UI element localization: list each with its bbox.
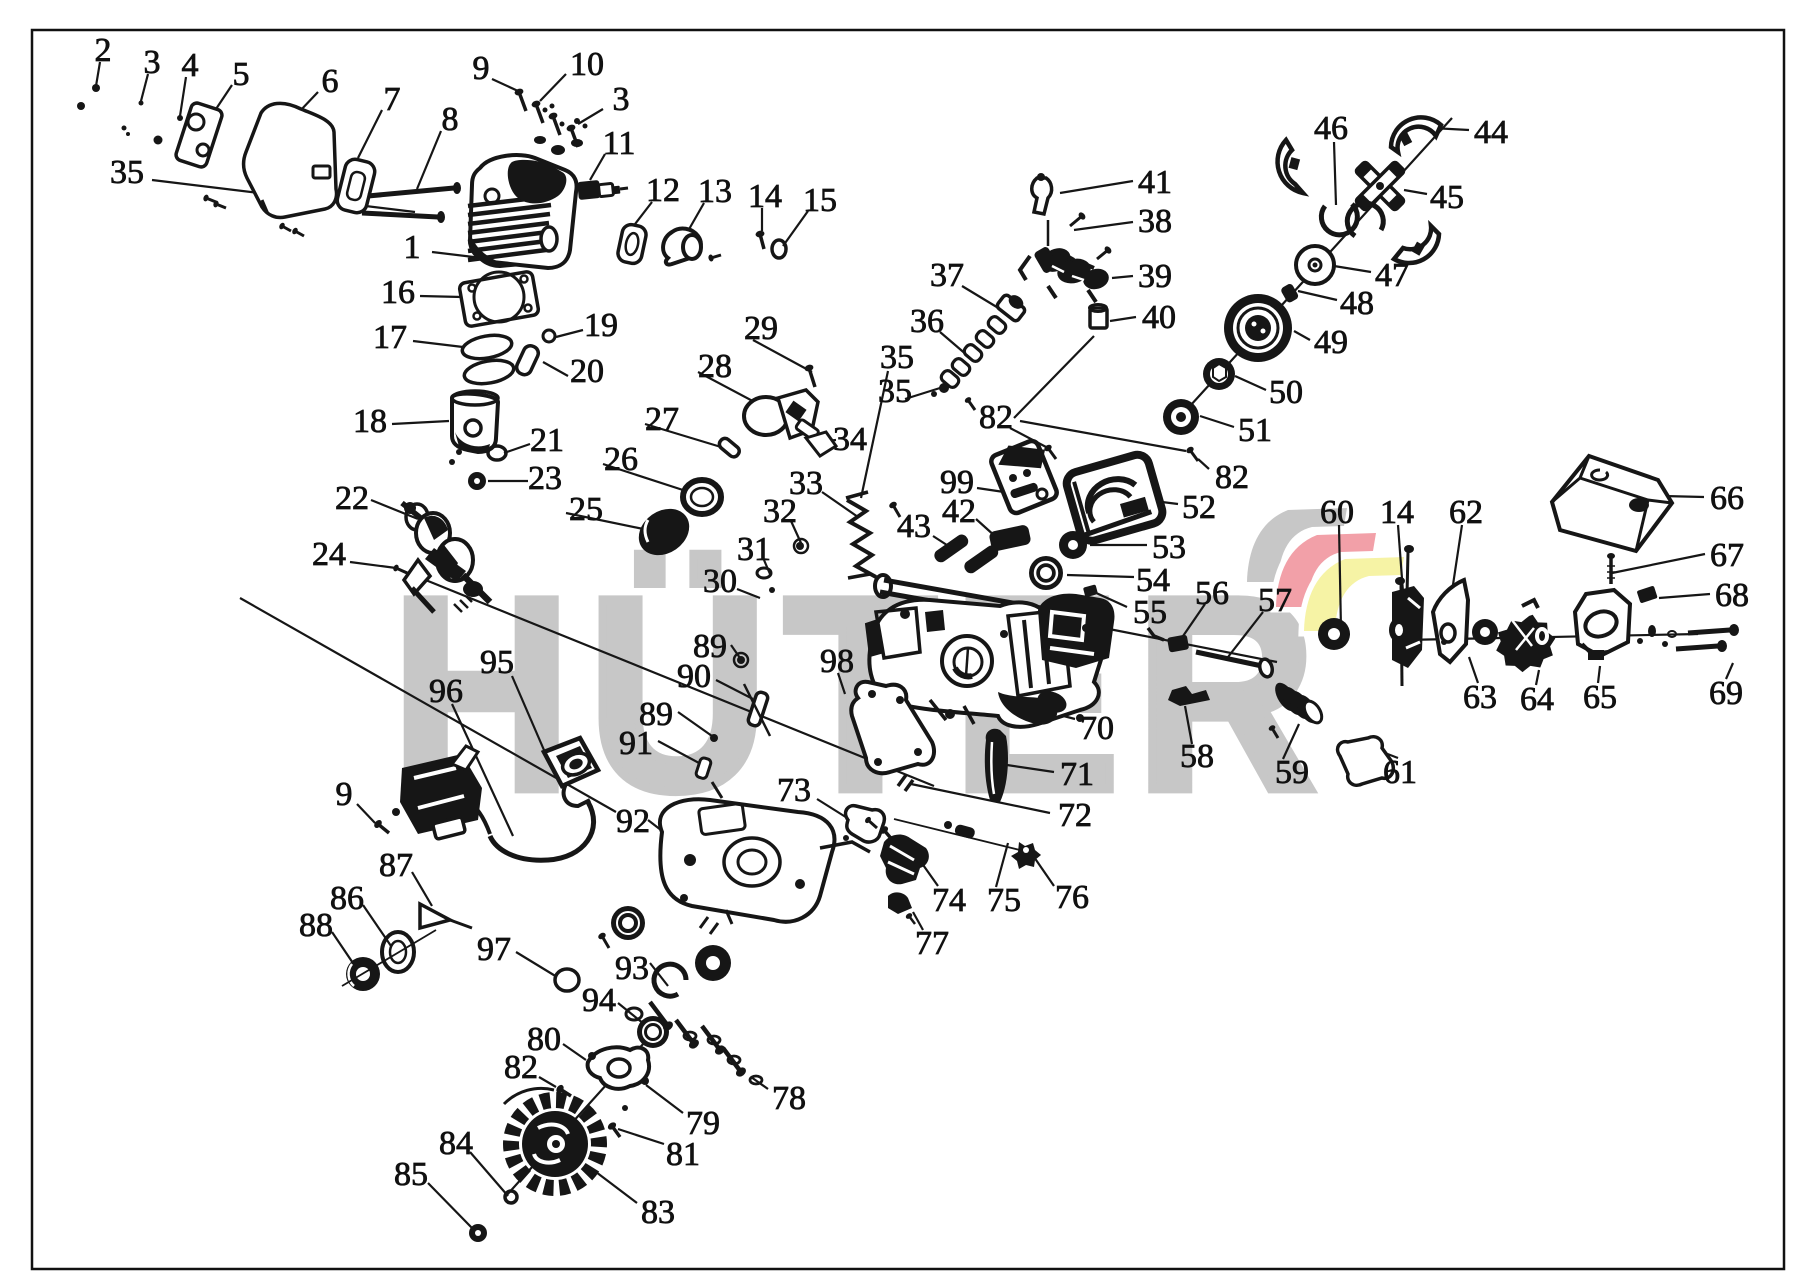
svg-text:49: 49: [1314, 324, 1348, 361]
svg-text:45: 45: [1430, 179, 1464, 216]
svg-text:4: 4: [182, 47, 199, 84]
svg-text:24: 24: [312, 536, 346, 573]
svg-text:41: 41: [1138, 164, 1172, 201]
svg-text:6: 6: [322, 63, 339, 100]
svg-text:77: 77: [915, 925, 949, 962]
svg-text:27: 27: [645, 401, 679, 438]
svg-text:66: 66: [1710, 480, 1744, 517]
svg-text:28: 28: [698, 348, 732, 385]
svg-text:63: 63: [1463, 679, 1497, 716]
svg-text:13: 13: [698, 173, 732, 210]
svg-text:44: 44: [1474, 114, 1508, 151]
svg-text:35: 35: [880, 339, 914, 376]
svg-text:74: 74: [932, 882, 966, 919]
svg-text:47: 47: [1375, 257, 1409, 294]
svg-text:64: 64: [1520, 681, 1554, 718]
svg-text:85: 85: [394, 1156, 428, 1193]
svg-text:2: 2: [95, 32, 112, 69]
svg-text:62: 62: [1449, 494, 1483, 531]
svg-text:81: 81: [666, 1136, 700, 1173]
svg-text:9: 9: [336, 776, 353, 813]
svg-text:3: 3: [613, 81, 630, 118]
svg-text:9: 9: [473, 50, 490, 87]
svg-text:93: 93: [615, 950, 649, 987]
svg-text:83: 83: [641, 1194, 675, 1231]
svg-text:86: 86: [330, 880, 364, 917]
svg-text:91: 91: [619, 725, 653, 762]
svg-text:97: 97: [477, 931, 511, 968]
svg-text:35: 35: [878, 373, 912, 410]
svg-text:20: 20: [570, 353, 604, 390]
svg-text:61: 61: [1383, 754, 1417, 791]
svg-text:21: 21: [530, 422, 564, 459]
svg-text:72: 72: [1058, 797, 1092, 834]
svg-text:75: 75: [987, 882, 1021, 919]
svg-text:39: 39: [1138, 258, 1172, 295]
svg-text:84: 84: [439, 1125, 473, 1162]
svg-text:34: 34: [833, 421, 867, 458]
svg-text:35: 35: [110, 154, 144, 191]
svg-text:69: 69: [1709, 675, 1743, 712]
svg-text:23: 23: [528, 460, 562, 497]
svg-text:15: 15: [803, 182, 837, 219]
svg-text:88: 88: [299, 907, 333, 944]
svg-text:30: 30: [703, 563, 737, 600]
svg-text:17: 17: [373, 319, 407, 356]
svg-text:7: 7: [384, 81, 401, 118]
svg-text:12: 12: [646, 172, 680, 209]
svg-text:76: 76: [1055, 879, 1089, 916]
svg-text:53: 53: [1152, 529, 1186, 566]
svg-text:82: 82: [504, 1049, 538, 1086]
svg-text:82: 82: [1215, 459, 1249, 496]
svg-text:43: 43: [897, 508, 931, 545]
svg-text:71: 71: [1060, 756, 1094, 793]
svg-text:48: 48: [1340, 285, 1374, 322]
svg-text:82: 82: [979, 399, 1013, 436]
svg-text:73: 73: [777, 772, 811, 809]
svg-text:37: 37: [930, 257, 964, 294]
svg-text:78: 78: [772, 1080, 806, 1117]
svg-text:3: 3: [144, 44, 161, 81]
svg-text:10: 10: [570, 46, 604, 83]
svg-text:8: 8: [442, 101, 459, 138]
svg-text:60: 60: [1320, 494, 1354, 531]
svg-text:46: 46: [1314, 110, 1348, 147]
svg-text:57: 57: [1258, 582, 1292, 619]
svg-text:96: 96: [429, 673, 463, 710]
svg-text:18: 18: [353, 403, 387, 440]
svg-text:58: 58: [1180, 738, 1214, 775]
svg-text:67: 67: [1710, 537, 1744, 574]
svg-text:11: 11: [603, 125, 636, 162]
svg-text:42: 42: [942, 493, 976, 530]
svg-text:95: 95: [480, 644, 514, 681]
svg-text:98: 98: [820, 643, 854, 680]
svg-text:14: 14: [748, 178, 782, 215]
svg-text:59: 59: [1275, 754, 1309, 791]
svg-text:33: 33: [789, 465, 823, 502]
svg-text:94: 94: [582, 982, 616, 1019]
svg-text:56: 56: [1195, 575, 1229, 612]
svg-text:38: 38: [1138, 203, 1172, 240]
svg-text:1: 1: [404, 229, 421, 266]
svg-text:87: 87: [379, 847, 413, 884]
svg-text:65: 65: [1583, 679, 1617, 716]
svg-text:14: 14: [1380, 494, 1414, 531]
svg-text:5: 5: [233, 56, 250, 93]
svg-text:29: 29: [744, 310, 778, 347]
svg-text:50: 50: [1269, 374, 1303, 411]
svg-text:31: 31: [737, 531, 771, 568]
svg-text:40: 40: [1142, 299, 1176, 336]
svg-text:92: 92: [616, 803, 650, 840]
svg-text:36: 36: [910, 303, 944, 340]
svg-text:55: 55: [1133, 594, 1167, 631]
svg-text:16: 16: [381, 274, 415, 311]
svg-text:25: 25: [569, 491, 603, 528]
svg-text:51: 51: [1238, 412, 1272, 449]
svg-text:22: 22: [335, 480, 369, 517]
svg-text:68: 68: [1715, 577, 1749, 614]
svg-text:90: 90: [677, 658, 711, 695]
svg-text:19: 19: [584, 307, 618, 344]
svg-text:26: 26: [604, 441, 638, 478]
svg-text:52: 52: [1182, 489, 1216, 526]
svg-text:70: 70: [1080, 710, 1114, 747]
